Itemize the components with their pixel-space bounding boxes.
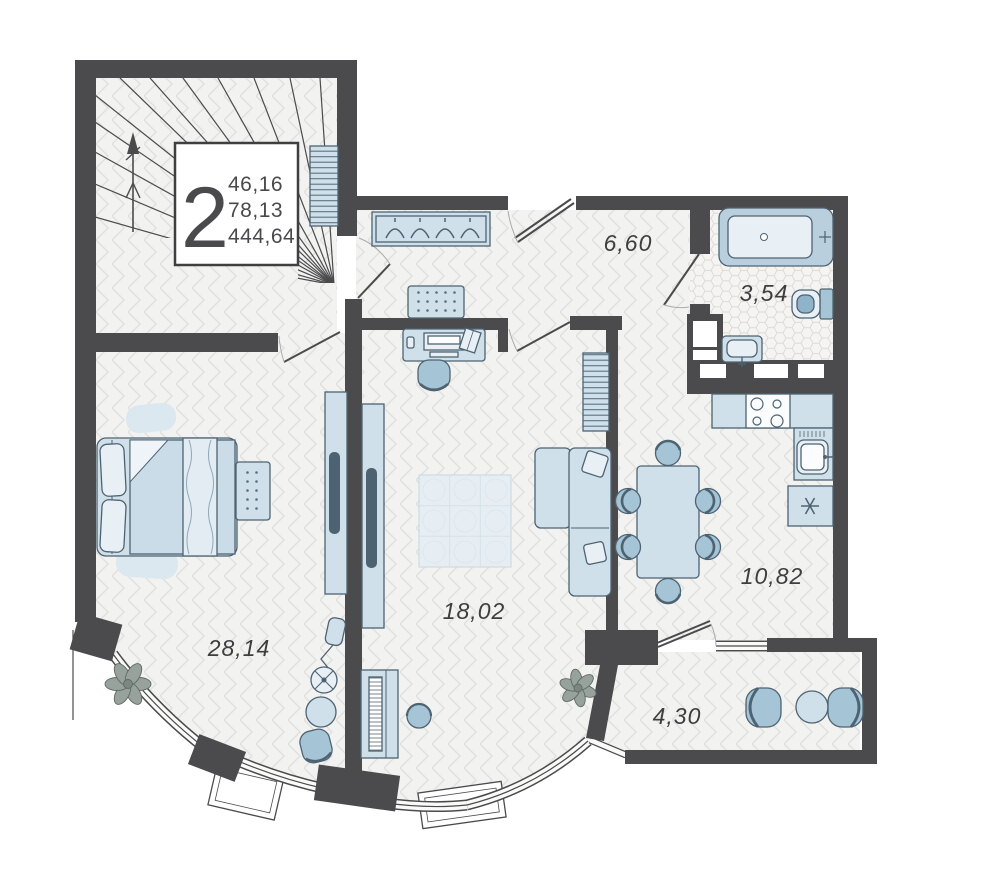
floor-plan: 6,60 3,54 10,82 18,02 28,14 4,30 2 46,16… [0,0,993,870]
fridge [788,486,833,526]
radiator-living [583,353,609,431]
unit-area-1: 46,16 [228,173,283,196]
radiator-stair-room [310,146,338,226]
chair [696,489,721,514]
wall-kitchen-bottom [767,638,848,652]
living-tv-unit [362,404,384,628]
pillow [100,499,127,552]
keyboard [430,352,458,357]
balcony-table [796,691,828,723]
bathroom-sink [722,336,762,367]
room-label-bedroom: 28,14 [207,635,271,661]
wall-balcony-right [862,645,877,764]
chair [616,535,641,560]
wall-kitchen-top [687,380,835,394]
bedroom-side-table [306,697,336,727]
vent-shaft-band [690,360,835,382]
room-label-hallway: 6,60 [604,230,653,256]
pillow [100,443,127,496]
toilet [792,289,833,319]
bed [97,438,237,556]
wardrobe [372,212,490,246]
wall-balcony-bottom [625,750,877,764]
living-rug [419,475,511,567]
room-label-bathroom: 3,54 [740,280,789,306]
unit-area-3: 444,64 [228,225,295,248]
wall-living-balcony-block [585,630,658,665]
tv-icon [329,452,340,534]
wall-right-outer [833,196,848,652]
unit-rooms-count: 2 [181,170,229,266]
bed-throw [183,438,217,556]
phone [407,337,414,348]
bedroom-tv-unit [325,392,347,594]
desk [403,328,485,361]
sofa-pillow [583,541,607,565]
unit-area-2: 78,13 [228,199,283,222]
chair [696,535,721,560]
room-label-living: 18,02 [443,598,506,624]
wall-bathroom-left-upper [690,196,710,254]
hall-dresser [408,286,464,318]
chair [656,579,681,604]
wall-stair-room-right [337,60,357,236]
wall-top-stair-room [75,60,356,78]
wall-hall-top-left [356,196,508,210]
chair [656,441,681,466]
room-label-kitchen: 10,82 [741,563,804,589]
kitchen-counter [712,394,833,428]
dining-table [637,466,699,578]
desk-chair [418,360,450,390]
wall-hall-bottom-stub [498,318,508,352]
bathtub [719,208,833,266]
kitchen-sink-counter [794,428,834,480]
chair [616,489,641,514]
tv-icon [366,468,377,568]
wall-bedroom-top [95,333,278,352]
floor-plan-page: 6,60 3,54 10,82 18,02 28,14 4,30 2 46,16… [0,0,993,870]
wall-hall-bottom [358,318,508,330]
unit-info-card: 2 46,16 78,13 444,64 [175,143,298,266]
balcony-chair-left [746,688,781,727]
piano-stool [407,704,431,728]
bedroom-dresser [236,462,270,520]
room-label-balcony: 4,30 [653,703,702,729]
piano [361,670,398,758]
balcony-chair-right [828,688,863,727]
wall-left-outer [75,60,96,622]
